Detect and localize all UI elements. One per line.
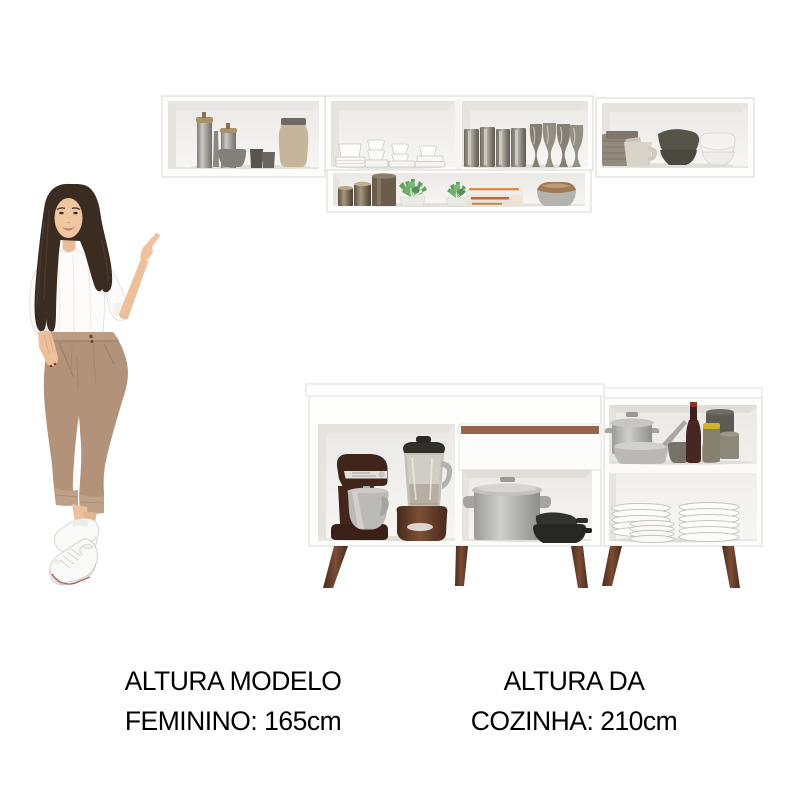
svg-text:COZINHA: 210cm: COZINHA: 210cm: [471, 706, 678, 736]
svg-text:ALTURA DA: ALTURA DA: [504, 666, 646, 696]
svg-text:FEMININO: 165cm: FEMININO: 165cm: [125, 706, 341, 736]
svg-text:ALTURA MODELO: ALTURA MODELO: [125, 666, 342, 696]
